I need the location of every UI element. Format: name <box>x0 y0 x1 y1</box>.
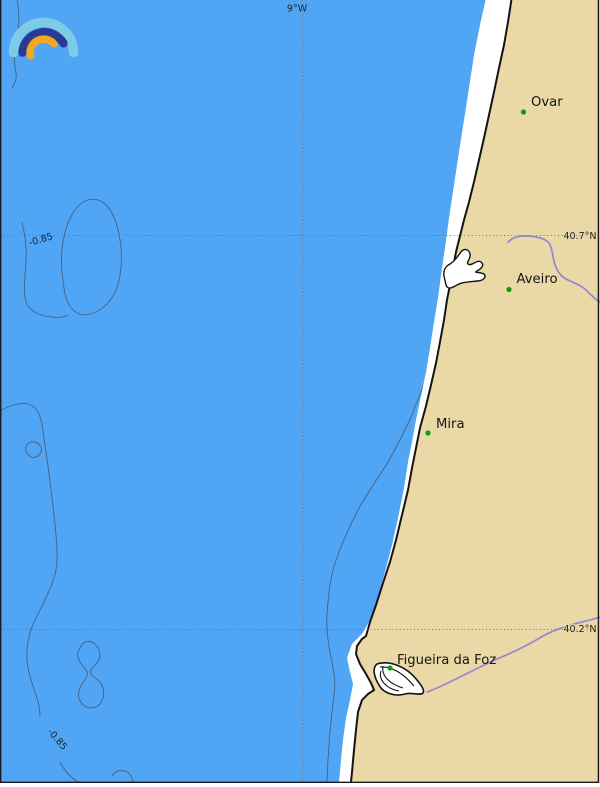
grid-label-meridian: 9°W <box>287 4 308 15</box>
city-marker-mira <box>425 430 430 435</box>
bottom-margin <box>0 783 600 787</box>
city-label-aveiro: Aveiro <box>517 272 558 287</box>
city-marker-figueira-da-foz <box>387 665 392 670</box>
city-marker-aveiro <box>506 287 511 292</box>
map-canvas: Ovar Aveiro Mira Figueira da Foz 9°W 40.… <box>0 0 600 787</box>
grid-label-parallel-40-2n: 40.2°N <box>563 624 596 635</box>
city-label-figueira-da-foz: Figueira da Foz <box>397 653 496 668</box>
city-label-mira: Mira <box>436 417 465 432</box>
city-marker-ovar <box>521 109 526 114</box>
city-label-ovar: Ovar <box>531 95 563 110</box>
grid-label-parallel-40-7n: 40.7°N <box>563 231 596 242</box>
coastal-map: Ovar Aveiro Mira Figueira da Foz 9°W 40.… <box>0 0 600 787</box>
